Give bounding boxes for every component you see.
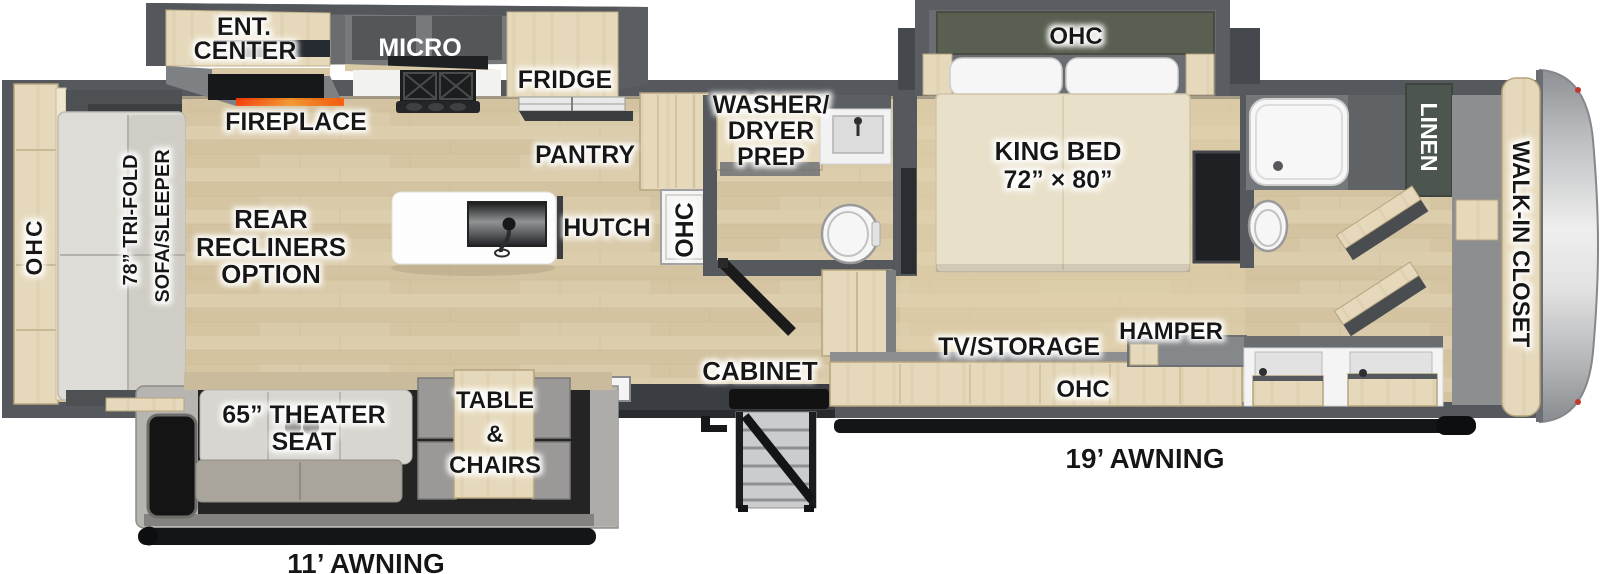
svg-text:LINEN: LINEN <box>1416 103 1442 172</box>
svg-text:19’ AWNING: 19’ AWNING <box>1065 443 1224 474</box>
svg-text:MICRO: MICRO <box>378 34 461 62</box>
svg-text:TV/STORAGE: TV/STORAGE <box>938 333 1100 361</box>
svg-text:PANTRY: PANTRY <box>535 141 635 169</box>
svg-text:72” × 80”: 72” × 80” <box>1003 166 1112 194</box>
svg-text:PREP: PREP <box>737 143 805 171</box>
svg-text:OHC: OHC <box>671 202 699 258</box>
svg-text:OHC: OHC <box>1056 376 1109 403</box>
svg-text:RECLINERS: RECLINERS <box>196 232 346 262</box>
svg-text:REAR: REAR <box>234 204 308 234</box>
svg-text:TABLE: TABLE <box>456 387 534 414</box>
svg-text:&: & <box>486 421 503 448</box>
svg-text:78” TRI-FOLD: 78” TRI-FOLD <box>120 154 142 285</box>
svg-text:CENTER: CENTER <box>194 37 297 65</box>
svg-text:CABINET: CABINET <box>702 356 818 386</box>
svg-text:OHC: OHC <box>1049 23 1102 50</box>
svg-text:SEAT: SEAT <box>272 428 337 456</box>
svg-text:FRIDGE: FRIDGE <box>518 66 612 94</box>
svg-text:DRYER: DRYER <box>728 117 815 145</box>
svg-text:FIREPLACE: FIREPLACE <box>225 108 367 136</box>
svg-text:SOFA/SLEEPER: SOFA/SLEEPER <box>152 149 174 303</box>
svg-text:OPTION: OPTION <box>221 259 321 289</box>
svg-text:KING BED: KING BED <box>994 136 1121 166</box>
svg-text:11’ AWNING: 11’ AWNING <box>287 548 445 574</box>
svg-text:WASHER/: WASHER/ <box>713 91 830 119</box>
svg-text:CHAIRS: CHAIRS <box>449 452 541 479</box>
svg-text:WALK-IN CLOSET: WALK-IN CLOSET <box>1507 141 1534 348</box>
svg-text:HUTCH: HUTCH <box>563 214 651 242</box>
svg-text:HAMPER: HAMPER <box>1119 318 1223 345</box>
svg-text:65” THEATER: 65” THEATER <box>222 401 385 429</box>
svg-text:OHC: OHC <box>21 218 47 275</box>
